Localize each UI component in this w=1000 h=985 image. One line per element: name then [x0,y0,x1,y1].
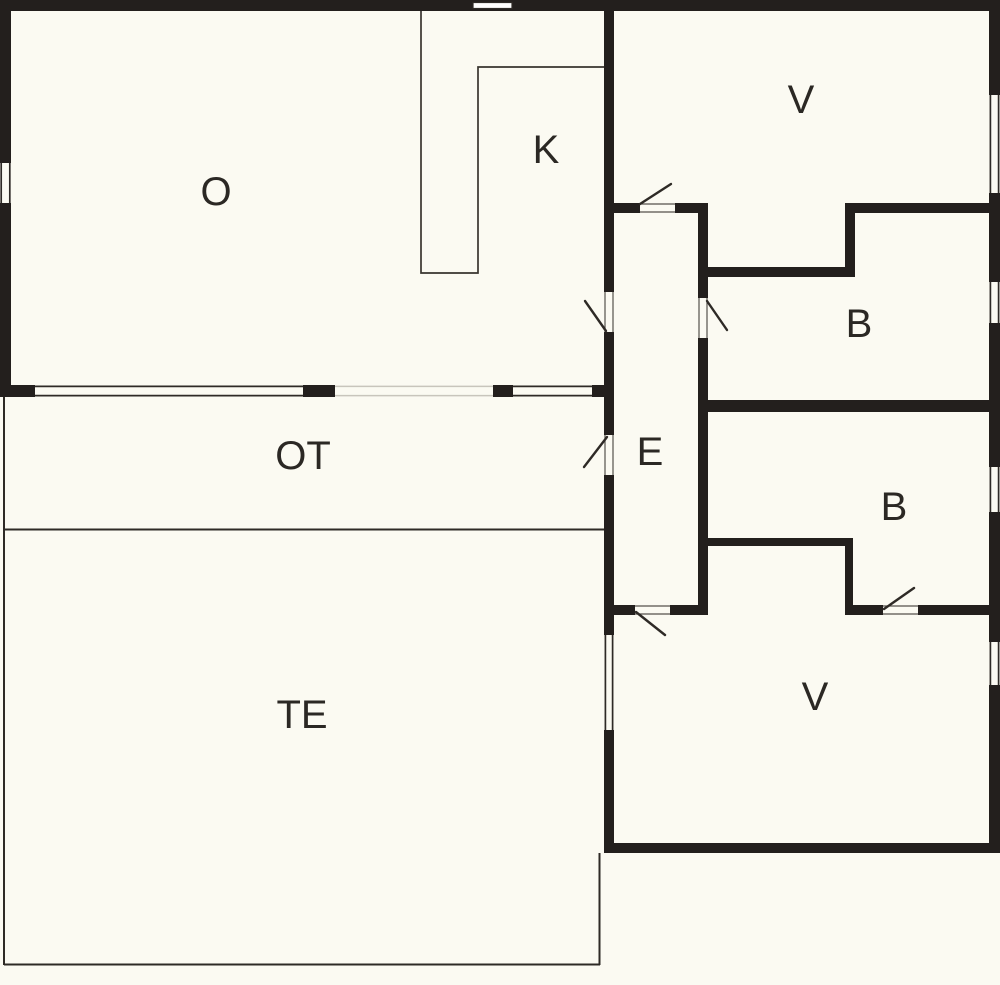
window-k-south [513,385,592,397]
window-o-west [0,163,11,203]
room-label-v-south: V [802,675,829,719]
wall-e-west-4 [604,730,614,843]
wall-v-alcove [698,267,855,277]
wall-step-north [845,203,855,277]
opening-o-ot [335,385,493,397]
floor-plan: O K V B E B V OT TE [0,0,1000,980]
window-b-north-east [989,282,1000,323]
wall-step-south [845,538,853,615]
room-label-v-north: V [788,78,815,122]
top-wall-vent [473,3,512,9]
wall-o-bottom-1 [0,385,35,397]
wall-left-upper [0,11,11,163]
wall-left-lower [0,203,11,397]
wall-e-v-1 [614,203,640,213]
window-v-south-west [604,635,614,730]
wall-e-east-1 [698,203,708,298]
wall-b-leg [698,538,853,546]
room-label-b-north: B [846,302,873,346]
room-label-e: E [637,430,664,474]
wall-e-west-2 [604,332,614,435]
wall-b-bottom-1 [845,605,883,615]
wall-o-bottom-2 [303,385,335,397]
floor-plan-canvas: O K V B E B V OT TE [0,0,1000,980]
window-v-north-east [989,95,1000,193]
wall-e-bottom-1 [614,605,635,615]
window-b-south-east [989,467,1000,512]
plan-background [0,0,1000,980]
window-o-south [35,385,303,397]
wall-e-west-1 [604,11,614,292]
wall-right-4 [989,512,1000,642]
wall-right-1 [989,0,1000,95]
room-label-ot: OT [275,434,331,478]
wall-b-bottom-2 [918,605,1000,615]
wall-right-5 [989,685,1000,843]
wall-e-v-2 [675,203,698,213]
window-v-south-east [989,642,1000,685]
wall-v-b [845,203,1000,213]
wall-right-3 [989,323,1000,467]
wall-south [604,843,1000,853]
wall-e-east-2 [698,338,708,615]
wall-b-b [698,400,1000,412]
wall-o-bottom-3 [493,385,513,397]
wall-e-bottom-2 [670,605,708,615]
wall-e-west-3 [604,475,614,635]
room-label-k: K [533,128,560,172]
room-label-b-south: B [881,485,908,529]
room-label-o: O [200,170,231,214]
room-label-te: TE [276,693,327,737]
